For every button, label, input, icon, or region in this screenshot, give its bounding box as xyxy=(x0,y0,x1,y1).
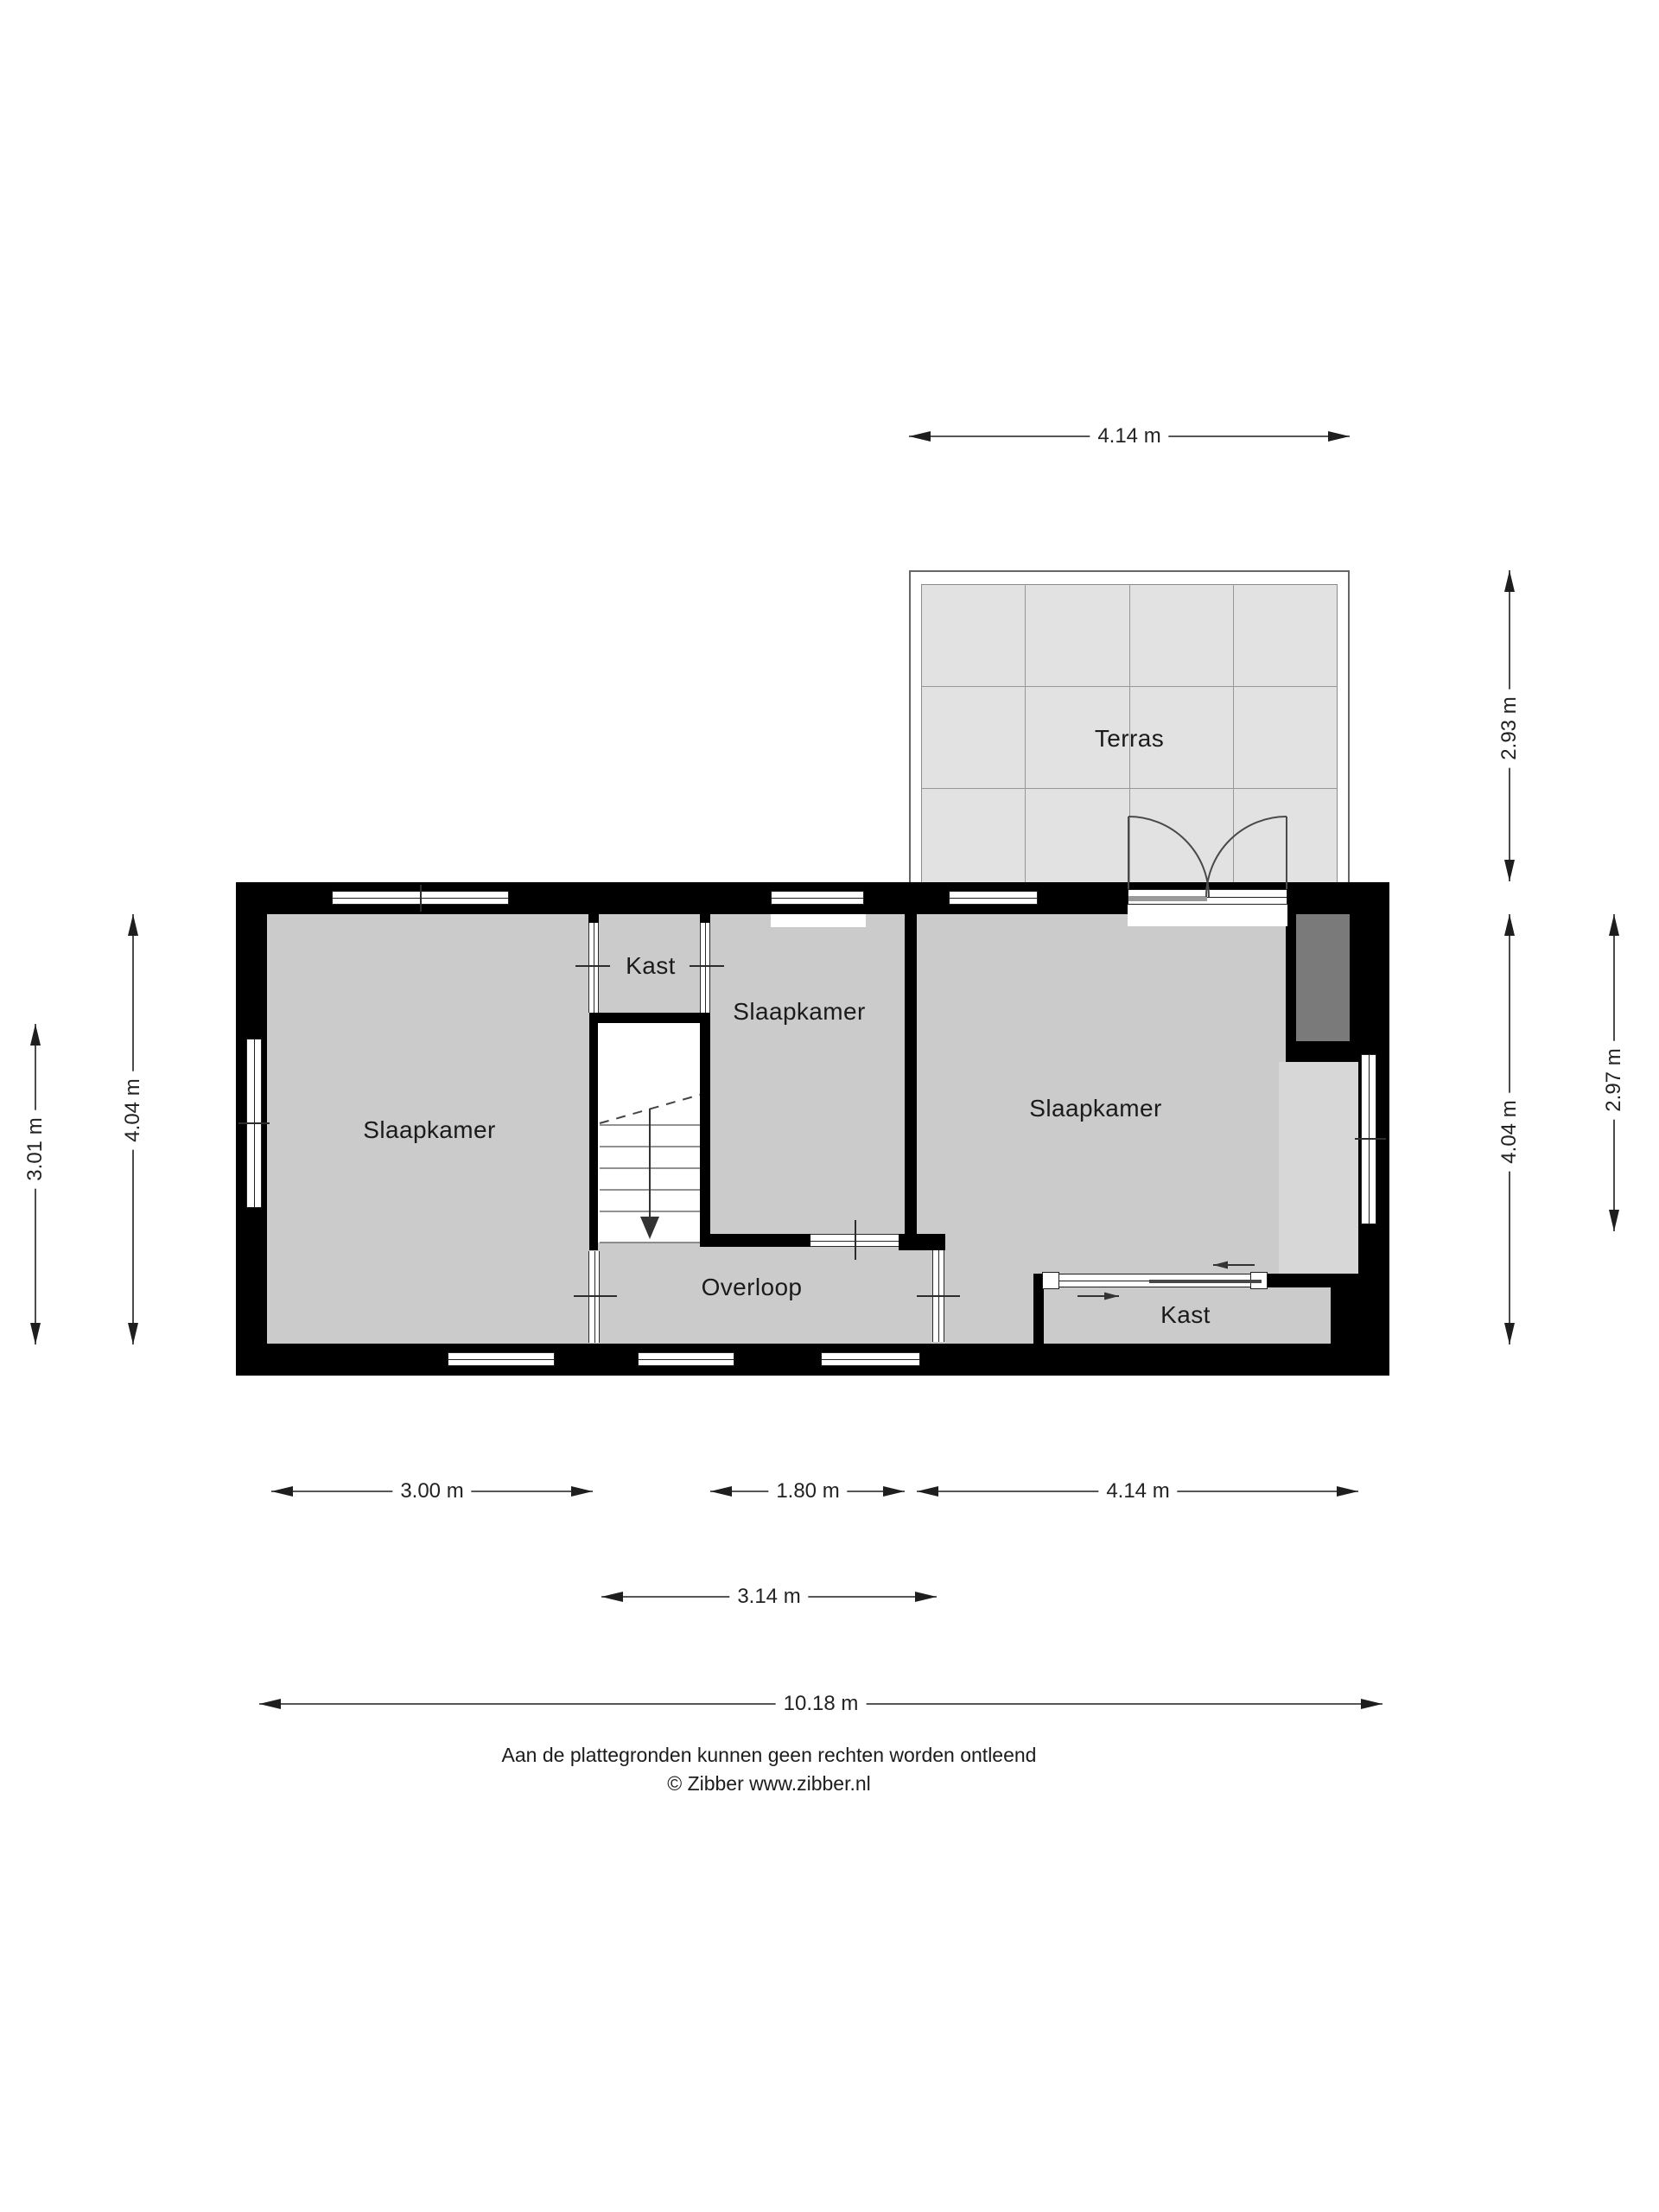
footer-copyright: © Zibber www.zibber.nl xyxy=(667,1772,871,1796)
dim-bottom-stairwell: 1.80 m xyxy=(768,1479,847,1503)
room-label-kast-top: Kast xyxy=(626,952,676,980)
room-label-terras: Terras xyxy=(1095,725,1164,753)
dim-bottom-total: 10.18 m xyxy=(776,1692,867,1716)
stairs xyxy=(600,1095,700,1243)
mullion-ticks xyxy=(238,885,1386,1296)
floorplan-page: Terras Kast Slaapkamer Slaapkamer Slaapk… xyxy=(0,0,1659,2212)
dim-left-outer: 3.01 m xyxy=(23,1109,48,1188)
dim-left-inner: 4.04 m xyxy=(121,1071,145,1149)
linework-overlay xyxy=(0,0,1659,2212)
terrace-door-swing xyxy=(1128,817,1287,897)
footer-disclaimer: Aan de plattegronden kunnen geen rechten… xyxy=(502,1744,1037,1767)
stairs-down-arrow xyxy=(640,1217,659,1239)
dim-bottom-right-room: 4.14 m xyxy=(1098,1479,1177,1503)
dim-bottom-mid-span: 3.14 m xyxy=(729,1585,808,1609)
dimension-lines xyxy=(35,436,1614,1704)
dim-right-outer: 2.97 m xyxy=(1602,1040,1626,1119)
room-label-bedroom-middle: Slaapkamer xyxy=(733,998,865,1026)
room-label-bedroom-left: Slaapkamer xyxy=(363,1116,495,1144)
dim-bottom-left-room: 3.00 m xyxy=(392,1479,471,1503)
room-label-bedroom-right: Slaapkamer xyxy=(1029,1095,1161,1122)
room-label-landing: Overloop xyxy=(702,1274,803,1301)
dim-terras-height: 2.93 m xyxy=(1497,689,1522,767)
dim-terras-width: 4.14 m xyxy=(1090,424,1168,448)
dim-right-inner: 4.04 m xyxy=(1497,1092,1522,1171)
room-label-kast-bottom: Kast xyxy=(1160,1301,1211,1329)
